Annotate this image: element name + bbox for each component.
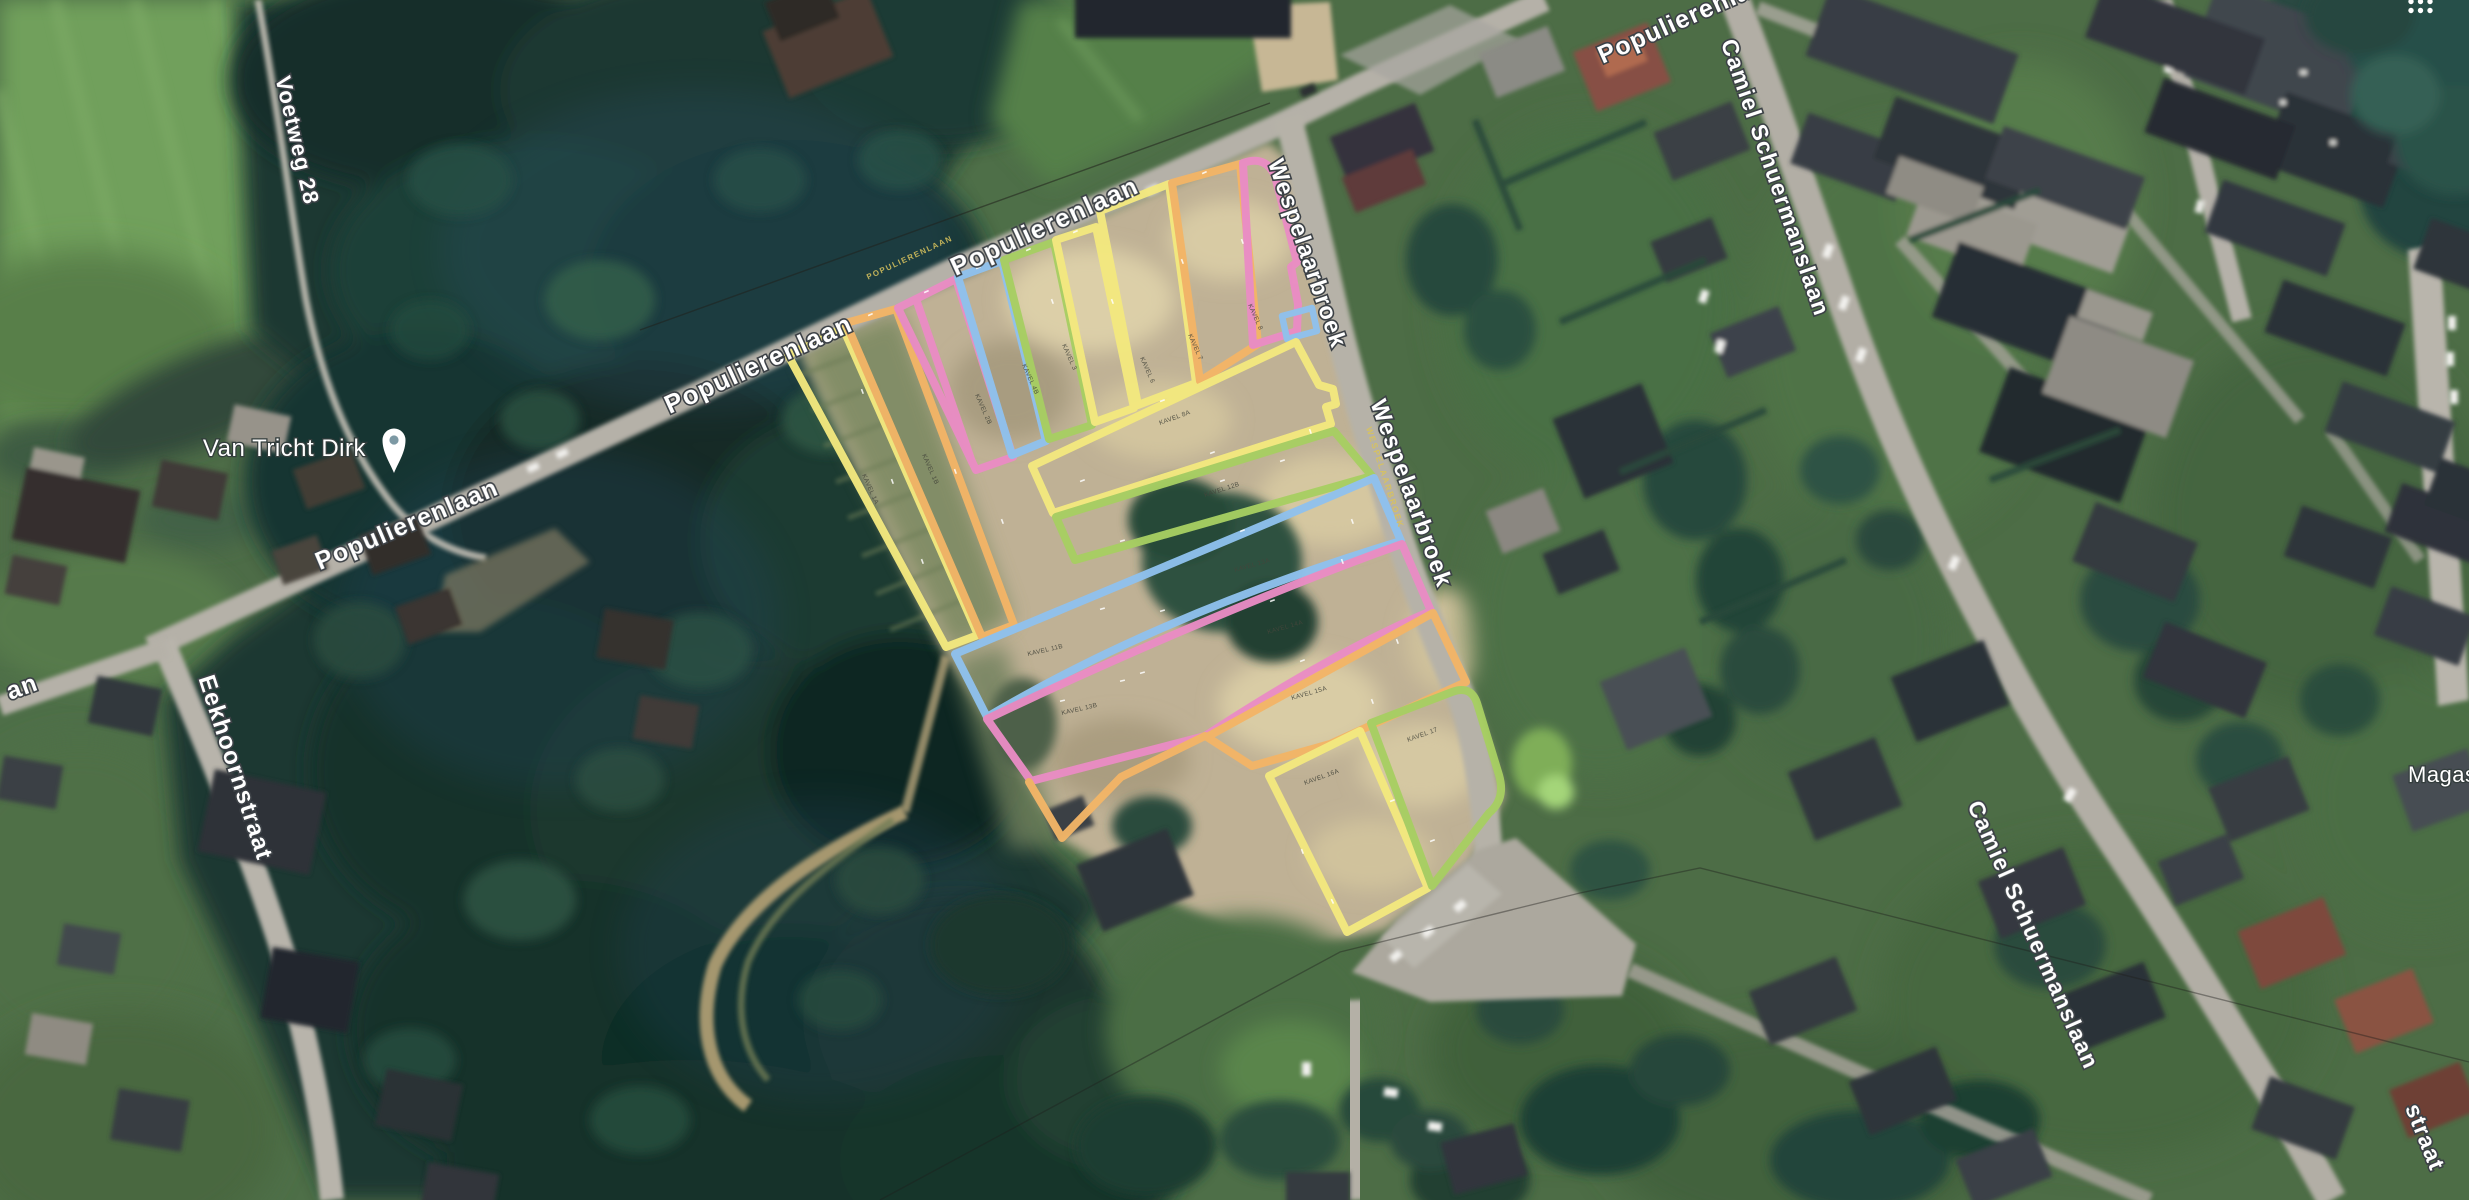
svg-text:Van Tricht Dirk: Van Tricht Dirk <box>203 435 367 462</box>
svg-text:Magasin: Magasin <box>2408 762 2469 787</box>
